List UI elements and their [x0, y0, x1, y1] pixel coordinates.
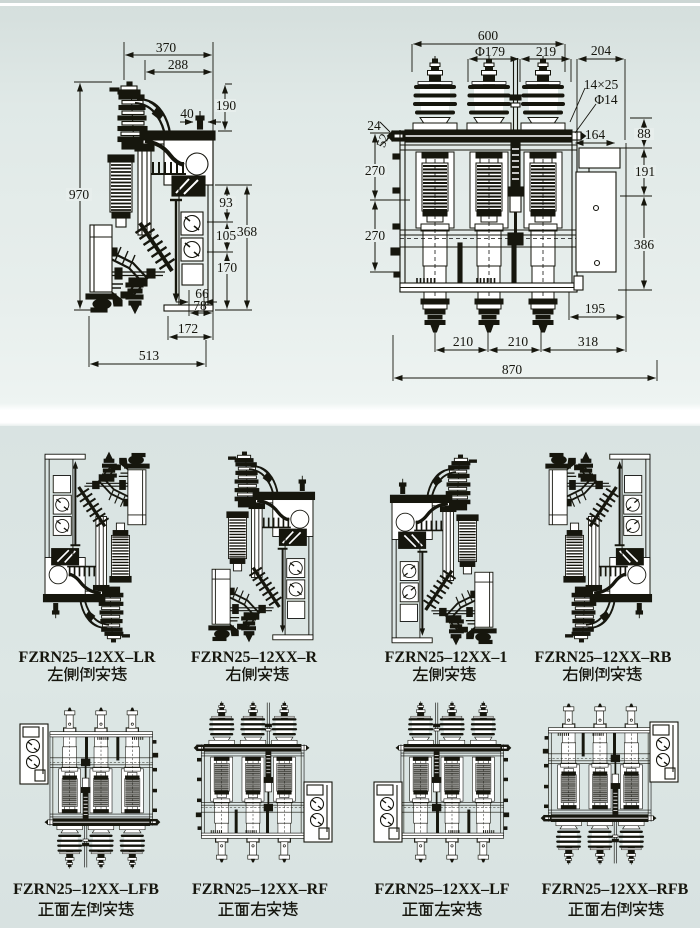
svg-text:204: 204	[591, 43, 612, 58]
svg-text:40: 40	[180, 106, 194, 121]
svg-text:191: 191	[635, 164, 655, 179]
svg-text:Φ14: Φ14	[594, 92, 618, 107]
svg-text:513: 513	[139, 348, 160, 363]
svg-text:FZRN25–12XX–R: FZRN25–12XX–R	[191, 649, 318, 666]
svg-text:105: 105	[216, 228, 237, 243]
svg-text:24: 24	[367, 118, 381, 133]
svg-text:970: 970	[69, 187, 90, 202]
svg-text:219: 219	[536, 44, 557, 59]
svg-text:270: 270	[365, 228, 386, 243]
svg-text:FZRN25–12XX–RB: FZRN25–12XX–RB	[535, 649, 672, 666]
svg-text:210: 210	[453, 334, 474, 349]
svg-text:190: 190	[216, 98, 237, 113]
svg-text:870: 870	[502, 362, 523, 377]
svg-text:170: 170	[217, 260, 238, 275]
svg-text:88: 88	[637, 126, 651, 141]
svg-text:195: 195	[585, 301, 606, 316]
svg-text:FZRN25–12XX–RF: FZRN25–12XX–RF	[192, 881, 328, 898]
svg-text:368: 368	[237, 224, 258, 239]
svg-text:93: 93	[219, 195, 233, 210]
svg-text:14×25: 14×25	[584, 77, 619, 92]
svg-text:600: 600	[478, 28, 499, 43]
svg-text:78: 78	[193, 298, 207, 313]
svg-text:FZRN25–12XX–RFB: FZRN25–12XX–RFB	[542, 881, 689, 898]
svg-text:270: 270	[365, 163, 386, 178]
svg-text:Φ179: Φ179	[475, 44, 505, 59]
svg-text:FZRN25–12XX–LR: FZRN25–12XX–LR	[19, 649, 156, 666]
svg-text:210: 210	[508, 334, 529, 349]
svg-text:288: 288	[168, 57, 189, 72]
svg-text:318: 318	[578, 334, 599, 349]
svg-text:FZRN25–12XX–LF: FZRN25–12XX–LF	[374, 881, 509, 898]
svg-text:FZRN25–12XX–1: FZRN25–12XX–1	[385, 649, 508, 666]
svg-text:386: 386	[634, 237, 655, 252]
svg-text:FZRN25–12XX–LFB: FZRN25–12XX–LFB	[13, 881, 159, 898]
svg-text:164: 164	[585, 127, 606, 142]
svg-text:172: 172	[178, 321, 198, 336]
svg-text:370: 370	[156, 40, 177, 55]
